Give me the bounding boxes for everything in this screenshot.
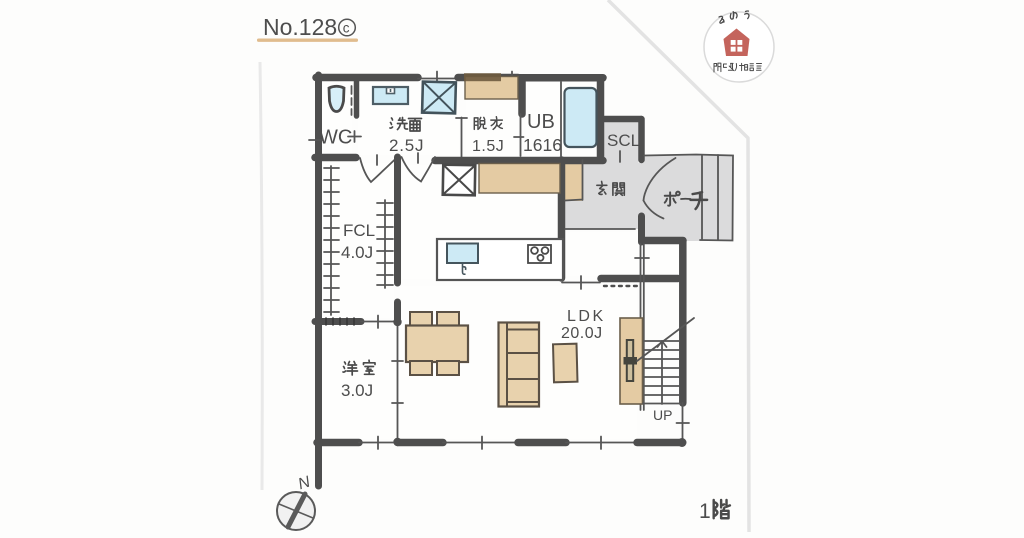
svg-text:LDK: LDK: [567, 308, 606, 325]
svg-text:2.5J: 2.5J: [389, 136, 424, 155]
svg-text:SCL: SCL: [607, 131, 640, 150]
svg-text:c: c: [343, 21, 350, 36]
svg-text:UP: UP: [653, 407, 672, 423]
svg-text:No.128: No.128: [263, 14, 337, 40]
svg-text:UB: UB: [527, 111, 555, 133]
svg-text:FCL: FCL: [343, 221, 375, 240]
svg-text:20.0J: 20.0J: [561, 325, 603, 342]
svg-text:4.0J: 4.0J: [341, 243, 373, 262]
svg-text:1.5J: 1.5J: [472, 138, 504, 155]
svg-text:1616: 1616: [523, 135, 562, 155]
svg-text:WC: WC: [319, 127, 352, 149]
svg-text:1: 1: [699, 500, 711, 523]
svg-text:3.0J: 3.0J: [341, 381, 373, 400]
